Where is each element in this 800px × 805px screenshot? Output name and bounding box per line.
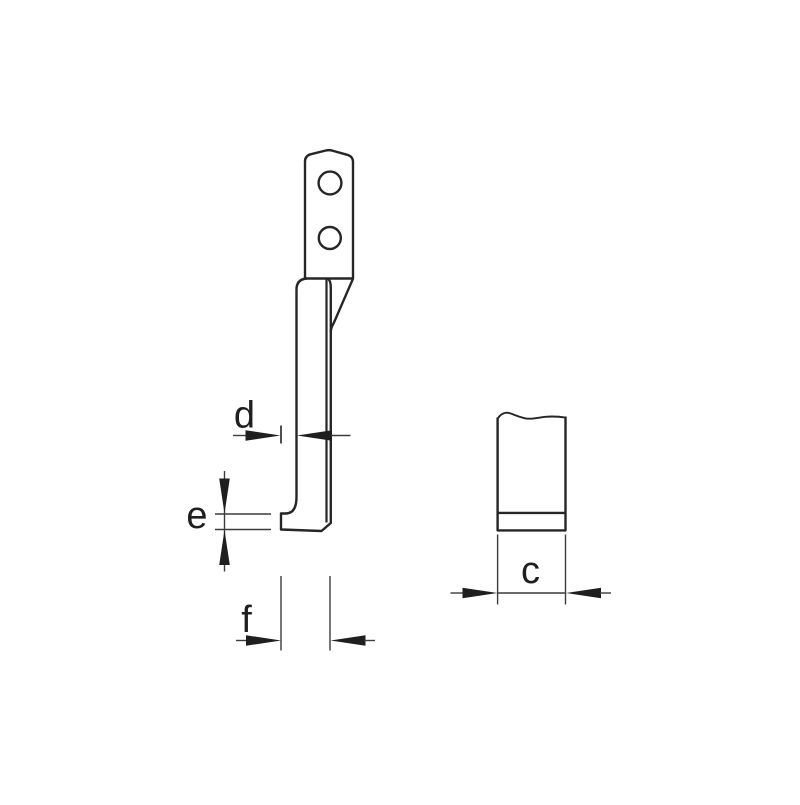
svg-text:d: d <box>234 395 255 437</box>
svg-text:e: e <box>186 495 207 537</box>
svg-text:f: f <box>241 599 252 641</box>
svg-text:c: c <box>521 550 540 592</box>
